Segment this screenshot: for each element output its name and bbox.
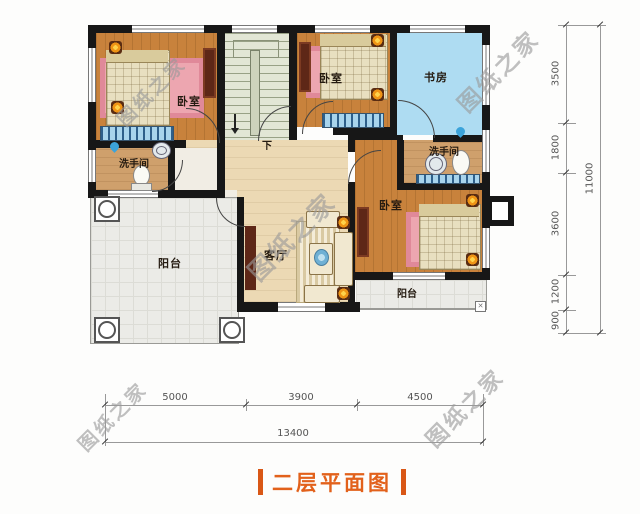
balcony-pillar-top-left — [94, 196, 120, 222]
wall-bath-right-left — [397, 140, 404, 185]
bath-left-sink — [152, 142, 171, 159]
door-arc-bedroom-right — [348, 150, 381, 184]
wall-bath-right-bottom — [397, 183, 483, 190]
bedroom-right-wardrobe — [357, 207, 369, 257]
window-bedroom-right-right — [482, 228, 490, 268]
table-decor — [314, 249, 329, 266]
dim-right-1200: 1200 — [551, 277, 562, 307]
bath-left-toilet-tank — [131, 183, 152, 191]
watermark-bottom-left: 图纸之家 — [71, 375, 152, 456]
dim-right-900: 900 — [551, 309, 562, 333]
dim-line-right-inner — [566, 25, 567, 333]
room-label-bedroom-top-mid: 卧室 — [319, 70, 343, 86]
room-label-bedroom-top-left: 卧室 — [177, 93, 201, 109]
dim-right-3600: 3600 — [551, 209, 562, 239]
bedroom-right-lamp-bottom — [466, 253, 479, 266]
window-study-top — [410, 25, 465, 33]
bath-right-strip — [416, 174, 480, 184]
window-bath-left-left — [88, 150, 96, 182]
wall-bed2-study — [390, 33, 397, 135]
bedroom-right-lamp-top — [466, 194, 479, 207]
bed1-lamp-top — [109, 41, 122, 54]
window-bath-right-right — [482, 130, 490, 172]
sofa-bottom — [304, 285, 340, 303]
stairs-down-label: 下 — [262, 137, 272, 152]
window-living-bottom — [278, 302, 325, 312]
window-bed2-top — [315, 25, 370, 33]
bed2-lamp-top — [371, 34, 384, 47]
dim-line-bottom-inner — [105, 405, 483, 406]
balcony-pillar-bottom-right — [219, 317, 245, 343]
bed2-wardrobe — [299, 42, 311, 92]
window-bed1-left — [88, 48, 96, 102]
dim-bottom-3900: 3900 — [286, 392, 316, 403]
plan-title: 二层平面图 — [258, 467, 406, 497]
living-lamp-top — [337, 216, 350, 229]
stair-arrow-head — [231, 128, 239, 134]
bed1-wardrobe — [203, 48, 216, 98]
balcony-bottom-right-floor — [356, 280, 487, 310]
sofa-right — [334, 232, 353, 286]
title-bar-left — [258, 469, 263, 495]
watermark-bottom-right: 图纸之家 — [417, 360, 510, 453]
floor-plan-canvas: ✕ 卧室 卧室 卧室 书房 洗手间 洗手间 客厅 阳台 阳台 下 3500 18… — [0, 0, 640, 514]
dim-line-right-outer — [600, 25, 601, 333]
room-label-study: 书房 — [424, 69, 448, 85]
dim-right-total: 11000 — [585, 161, 596, 197]
title-text: 二层平面图 — [272, 467, 392, 497]
dim-bottom-5000: 5000 — [160, 392, 190, 403]
corridor-floor — [225, 140, 348, 202]
title-bar-right — [401, 469, 406, 495]
wall-bed1-stairs — [217, 33, 225, 198]
dim-bottom-total: 13400 — [275, 428, 311, 439]
dim-tick — [558, 123, 576, 124]
balcony-drain-marker: ✕ — [475, 301, 486, 312]
living-lamp-bottom — [337, 287, 350, 300]
stair-arrow-line — [234, 114, 236, 128]
balcony-pillar-bottom-left — [94, 317, 120, 343]
window-stairs-top — [232, 25, 277, 33]
bed1-window-strip — [100, 126, 174, 141]
bed2-lamp-bottom — [371, 88, 384, 101]
dim-tick — [558, 173, 576, 174]
wall-study-bottom — [433, 135, 482, 142]
wall-hall-bedroom-a — [348, 133, 355, 152]
room-label-balcony-bottom: 阳台 — [397, 285, 417, 300]
room-label-bath-left: 洗手间 — [119, 155, 149, 170]
dim-bottom-4500: 4500 — [405, 392, 435, 403]
room-label-balcony-left: 阳台 — [158, 255, 182, 271]
window-bed1-top — [132, 25, 204, 33]
stair-rail — [250, 50, 260, 136]
dim-right-1800: 1800 — [551, 133, 562, 163]
dim-line-bottom-outer — [105, 442, 483, 443]
room-label-bedroom-right: 卧室 — [379, 197, 403, 213]
wall-strip-top — [355, 133, 397, 140]
dim-right-3500: 3500 — [551, 59, 562, 89]
room-label-bath-right: 洗手间 — [429, 143, 459, 158]
chimney-flue — [486, 196, 514, 226]
window-bedroom-right-bottom — [393, 272, 445, 280]
